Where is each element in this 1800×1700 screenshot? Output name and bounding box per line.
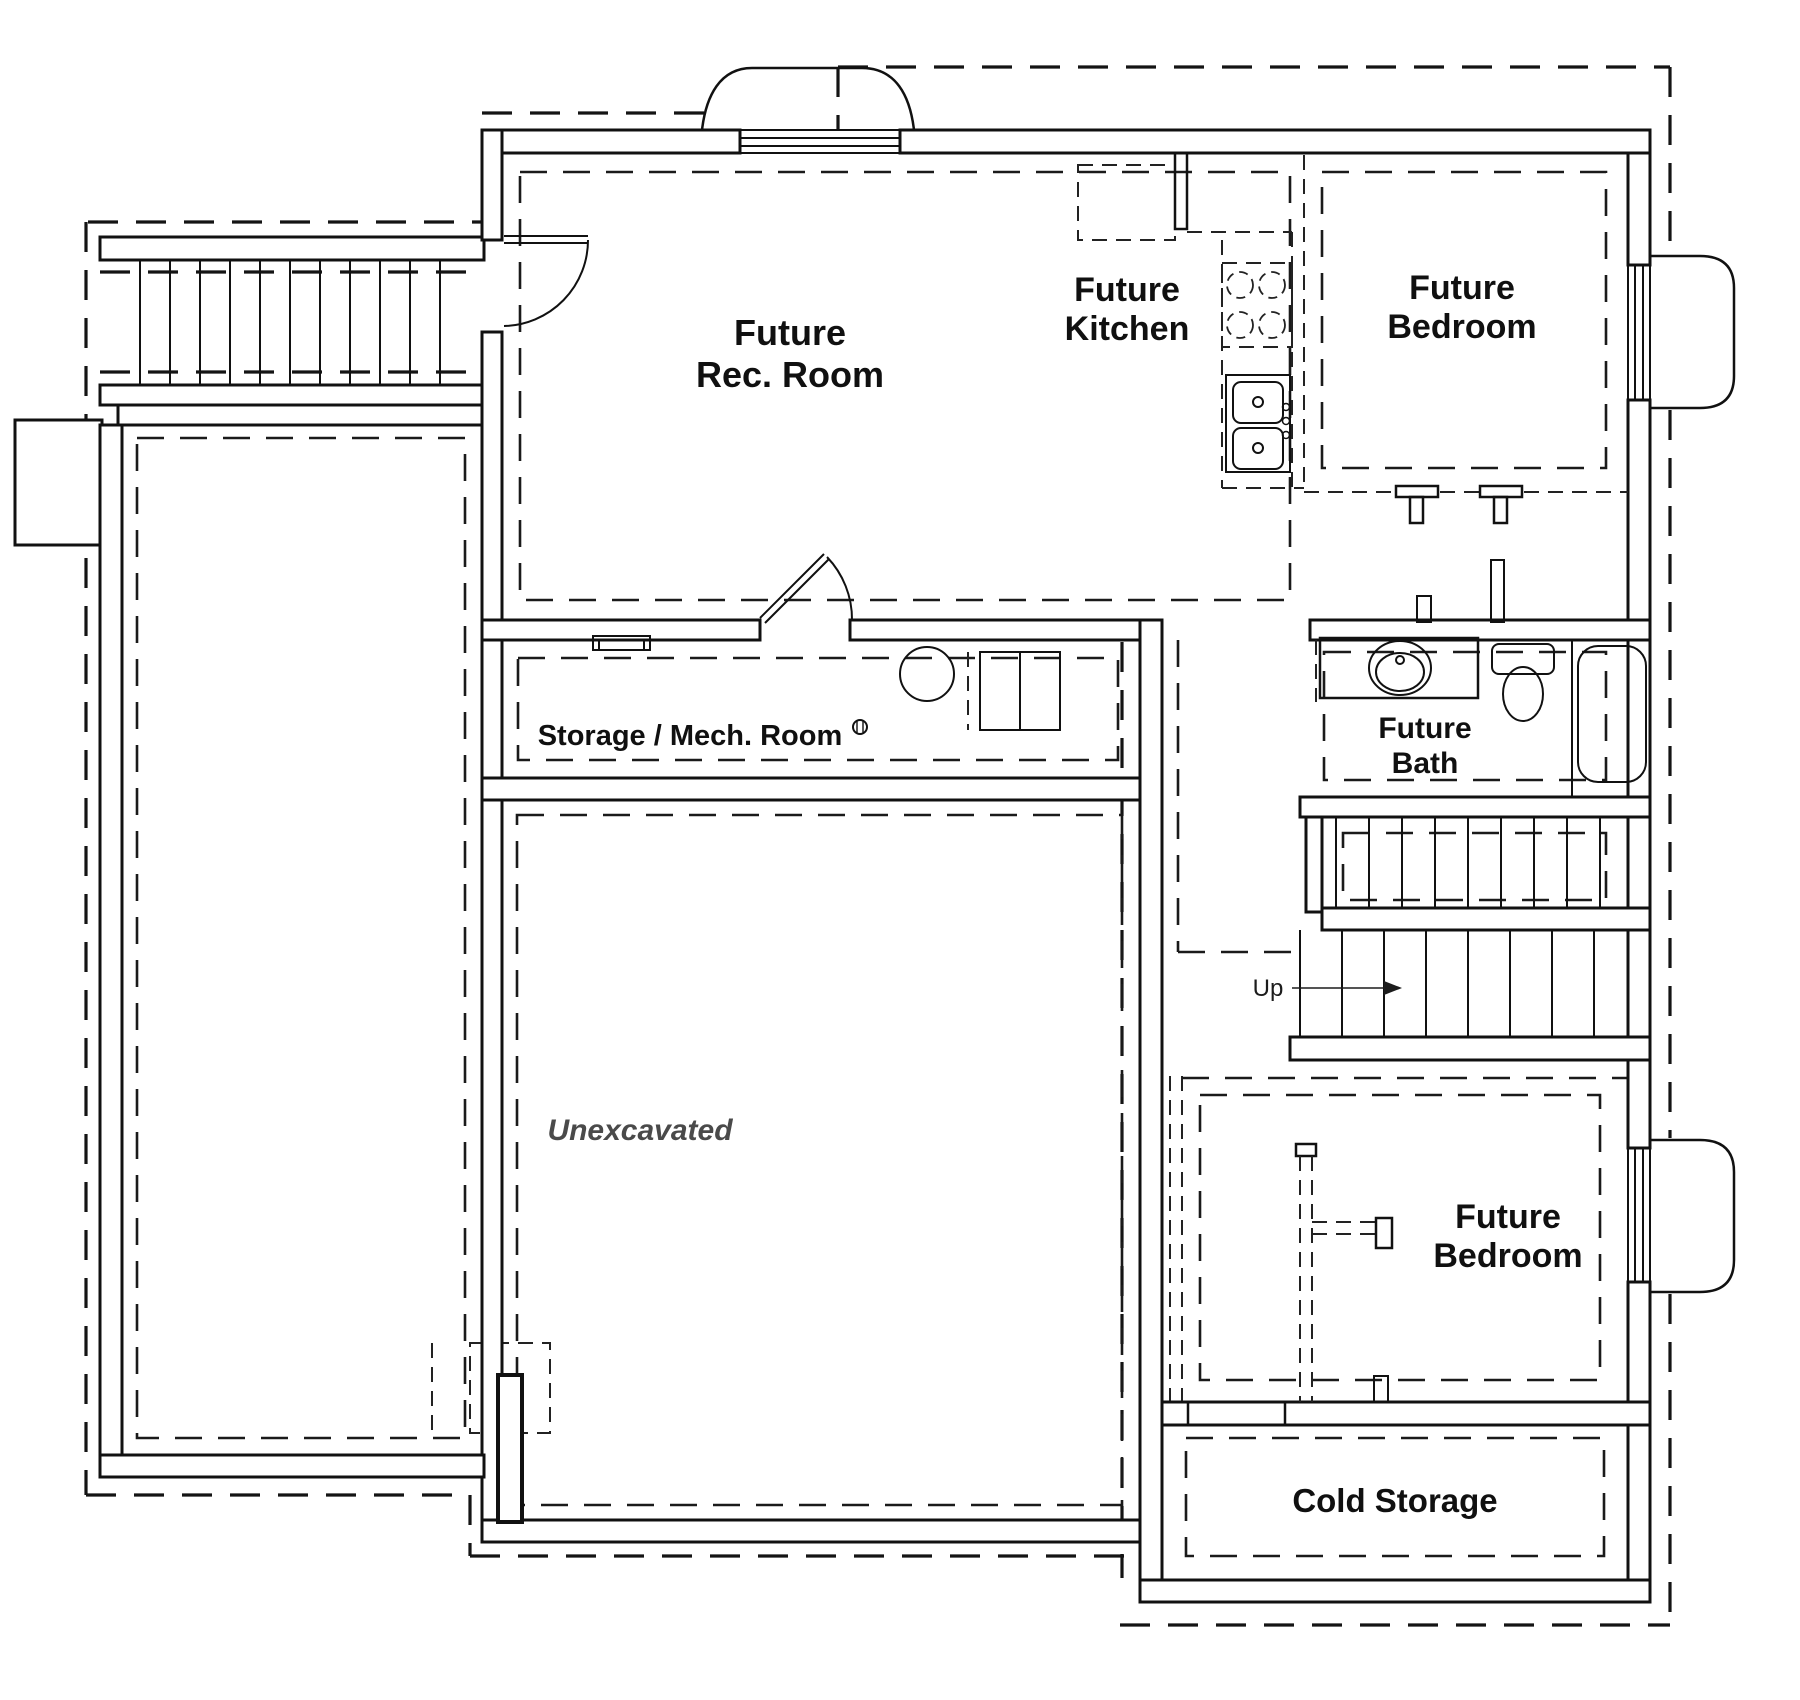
mech-fixtures	[853, 647, 1060, 734]
bath-south-wall	[1300, 797, 1650, 817]
exterior-stair-bottom-wall	[100, 385, 484, 405]
storage-mech-label: Storage / Mech. Room	[538, 720, 843, 752]
north-wall-west	[502, 130, 740, 153]
north-window-well	[702, 68, 914, 130]
stair-rail-wall	[1322, 908, 1650, 930]
east-window-well-lower	[1650, 1140, 1734, 1292]
bedroom-lower-closet	[1296, 1144, 1392, 1402]
west-bump-out-wall	[15, 420, 102, 545]
central-vertical-wall	[1140, 620, 1162, 1602]
bedroom-lower-label-line1: Future	[1455, 1198, 1561, 1236]
door-swing-arc	[504, 240, 588, 326]
east-window-well-upper	[1650, 256, 1734, 408]
east-wall-3	[1628, 1282, 1650, 1602]
east-window-upper	[1628, 256, 1734, 408]
bath-fixtures	[1320, 560, 1646, 797]
concrete-pier	[498, 1375, 522, 1522]
closet-wall-cap	[1296, 1144, 1316, 1156]
closet-corner-cap	[1376, 1218, 1392, 1248]
stair-upper-run	[1336, 817, 1600, 908]
up-label: Up	[1253, 975, 1284, 1002]
bedroom-lower-label-line2: Bedroom	[1433, 1237, 1582, 1275]
cold-storage-bottom-wall	[1140, 1580, 1650, 1602]
room-labels: Future Rec. Room Future Kitchen Future B…	[538, 269, 1583, 1519]
bedroom-upper-label-line1: Future	[1409, 269, 1515, 307]
plumbing-stub-2	[1491, 560, 1504, 622]
southwest-bottom-wall	[100, 1455, 484, 1477]
bath-label-line2: Bath	[1392, 747, 1459, 780]
bedroom-upper-future-walls	[1304, 486, 1628, 523]
west-wall-lower	[482, 332, 502, 1520]
storage-north-wall-east	[850, 620, 1142, 640]
toilet-icon	[1492, 644, 1554, 721]
garage-top-wall	[118, 405, 484, 425]
floor-drain-icon	[853, 720, 867, 734]
future-fridge-box	[1078, 165, 1175, 240]
stair-lower-run	[1300, 930, 1594, 1037]
wall-stub-t-left	[1396, 486, 1438, 523]
cold-storage-label: Cold Storage	[1292, 1482, 1497, 1519]
rec-room-label-line1: Future	[734, 312, 846, 353]
cold-storage-top-wall	[1162, 1402, 1650, 1425]
plumbing-stub-1	[1417, 596, 1431, 622]
far-west-wall	[100, 425, 122, 1477]
stair-bottom-wall	[1290, 1037, 1650, 1060]
water-heater-icon	[900, 647, 954, 701]
east-wall-1	[1628, 153, 1650, 265]
rec-room-entry-door	[504, 236, 588, 326]
floor-plan-page: Up	[0, 0, 1800, 1700]
up-annotation: Up	[1253, 975, 1402, 1002]
bedroom-upper-label-line2: Bedroom	[1387, 308, 1536, 346]
floor-plan-drawing: Up	[0, 0, 1800, 1700]
unexcavated-label: Unexcavated	[547, 1114, 733, 1147]
kitchen-label-line1: Future	[1074, 271, 1180, 309]
kitchen-sink-icon	[1226, 375, 1290, 472]
south-strip-bottom-wall	[482, 1520, 1162, 1542]
up-arrow-head	[1384, 981, 1402, 995]
storage-south-wall	[482, 778, 1162, 800]
exterior-stair-top-wall	[100, 237, 484, 260]
bath-label-line1: Future	[1378, 712, 1471, 745]
east-window-lower	[1628, 1140, 1734, 1292]
exterior-stair-treads	[140, 260, 440, 385]
storage-room-door	[760, 554, 852, 623]
rec-room-label-line2: Rec. Room	[696, 354, 884, 395]
window-layer	[702, 68, 1734, 1292]
wall-stub-t-right	[1480, 486, 1522, 523]
door-swing-arc	[827, 557, 852, 620]
stair-newel-wall	[1306, 817, 1322, 912]
north-wall-east	[900, 130, 1650, 153]
furnace-icon	[968, 652, 1060, 730]
unexcavated-inner-dashed	[517, 815, 1122, 1505]
garage-strip-inner-dashed	[137, 438, 465, 1438]
vanity-sink-icon	[1320, 638, 1478, 698]
cooktop-icon	[1222, 263, 1292, 347]
kitchen-wall-stub	[1175, 153, 1187, 229]
kitchen-label-line2: Kitchen	[1065, 310, 1190, 348]
west-wall-upper	[482, 130, 502, 240]
